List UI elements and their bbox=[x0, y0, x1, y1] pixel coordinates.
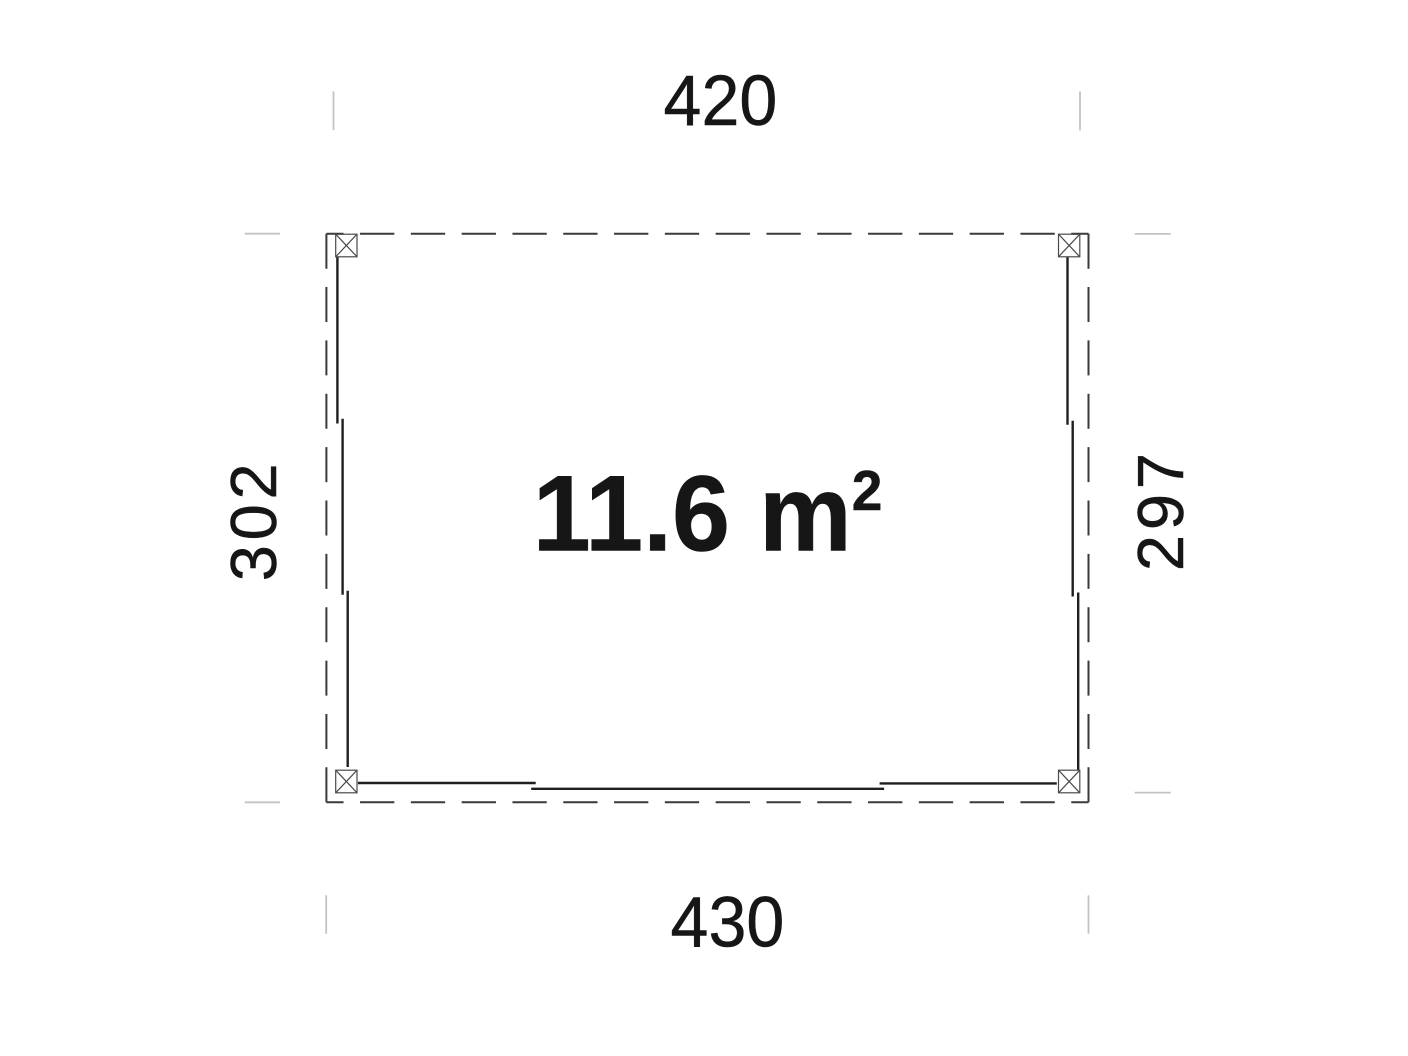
svg-text:302: 302 bbox=[217, 463, 290, 581]
svg-text:430: 430 bbox=[671, 882, 785, 962]
svg-text:297: 297 bbox=[1124, 453, 1197, 571]
svg-text:420: 420 bbox=[664, 61, 778, 141]
svg-text:11.6 m2: 11.6 m2 bbox=[533, 454, 883, 574]
